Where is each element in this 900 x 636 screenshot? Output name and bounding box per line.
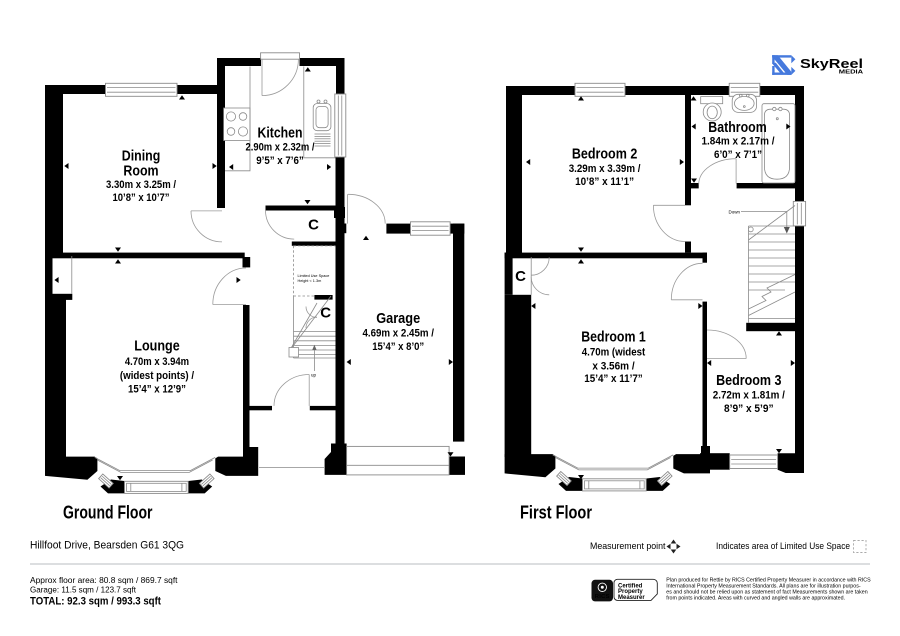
svg-text:MEDIA: MEDIA (839, 70, 863, 76)
svg-text:15’4” x 11’7”: 15’4” x 11’7” (584, 373, 642, 385)
svg-text:Down: Down (729, 210, 741, 215)
svg-text:up: up (311, 373, 317, 378)
svg-text:Bathroom: Bathroom (708, 119, 766, 136)
svg-text:Approx floor area: 80.8 sqm /: Approx floor area: 80.8 sqm / 869.7 sqft (30, 575, 178, 585)
svg-text:Limited Use Space: Limited Use Space (298, 274, 330, 278)
svg-text:9’5” x 7’6”: 9’5” x 7’6” (256, 155, 304, 167)
svg-text:from points indicated. Areas w: from points indicated. Areas with curved… (666, 595, 845, 601)
svg-text:2.90m x 2.32m /: 2.90m x 2.32m / (246, 142, 315, 154)
svg-text:4.70m (widest: 4.70m (widest (582, 347, 646, 359)
svg-text:Bedroom 2: Bedroom 2 (572, 146, 637, 163)
svg-text:8’9” x 5’9”: 8’9” x 5’9” (724, 403, 774, 415)
svg-text:4.70m x 3.94m: 4.70m x 3.94m (125, 356, 189, 368)
svg-text:C: C (320, 305, 331, 322)
svg-text:TOTAL: 92.3 sqm / 993.3 sqft: TOTAL: 92.3 sqm / 993.3 sqft (30, 596, 161, 608)
svg-text:Kitchen: Kitchen (258, 125, 303, 142)
svg-text:Bedroom 1: Bedroom 1 (581, 329, 646, 346)
svg-text:Ground Floor: Ground Floor (63, 502, 153, 523)
svg-text:2.72m x 1.81m /: 2.72m x 1.81m / (713, 389, 785, 401)
svg-text:Measurement point: Measurement point (590, 541, 666, 551)
svg-text:RICS: RICS (595, 594, 610, 600)
svg-text:First Floor: First Floor (520, 502, 592, 523)
svg-text:1.84m x 2.17m /: 1.84m x 2.17m / (702, 136, 775, 148)
svg-text:10’8” x 11’1”: 10’8” x 11’1” (575, 176, 634, 188)
svg-text:Hillfoot Drive, Bearsden G61 3: Hillfoot Drive, Bearsden G61 3QG (30, 540, 184, 552)
svg-text:x 3.56m /: x 3.56m / (592, 360, 634, 372)
svg-text:Room: Room (123, 162, 158, 179)
svg-text:Bedroom 3: Bedroom 3 (716, 372, 781, 389)
svg-text:Lounge: Lounge (134, 337, 179, 354)
svg-text:Indicates area of Limited Use: Indicates area of Limited Use Space (716, 541, 850, 551)
svg-text:C: C (308, 216, 319, 233)
svg-text:Height < 1.3m: Height < 1.3m (298, 279, 322, 283)
svg-text:3.29m x 3.39m /: 3.29m x 3.39m / (569, 163, 641, 175)
svg-text:10’8” x 10’7”: 10’8” x 10’7” (113, 192, 170, 204)
svg-text:15’4” x 12’9”: 15’4” x 12’9” (128, 384, 186, 396)
svg-text:Measurer: Measurer (618, 595, 645, 601)
svg-text:C: C (515, 268, 526, 285)
svg-text:6’0” x 7’1”: 6’0” x 7’1” (714, 149, 762, 161)
svg-text:3.30m x 3.25m /: 3.30m x 3.25m / (106, 179, 176, 191)
svg-text:Garage: 11.5 sqm / 123.7 sqft: Garage: 11.5 sqm / 123.7 sqft (30, 585, 137, 595)
svg-text:(widest points) /: (widest points) / (120, 370, 194, 382)
svg-text:4.69m x 2.45m /: 4.69m x 2.45m / (362, 328, 434, 340)
svg-text:Garage: Garage (376, 310, 420, 327)
svg-text:15’4” x 8’0”: 15’4” x 8’0” (372, 341, 424, 353)
